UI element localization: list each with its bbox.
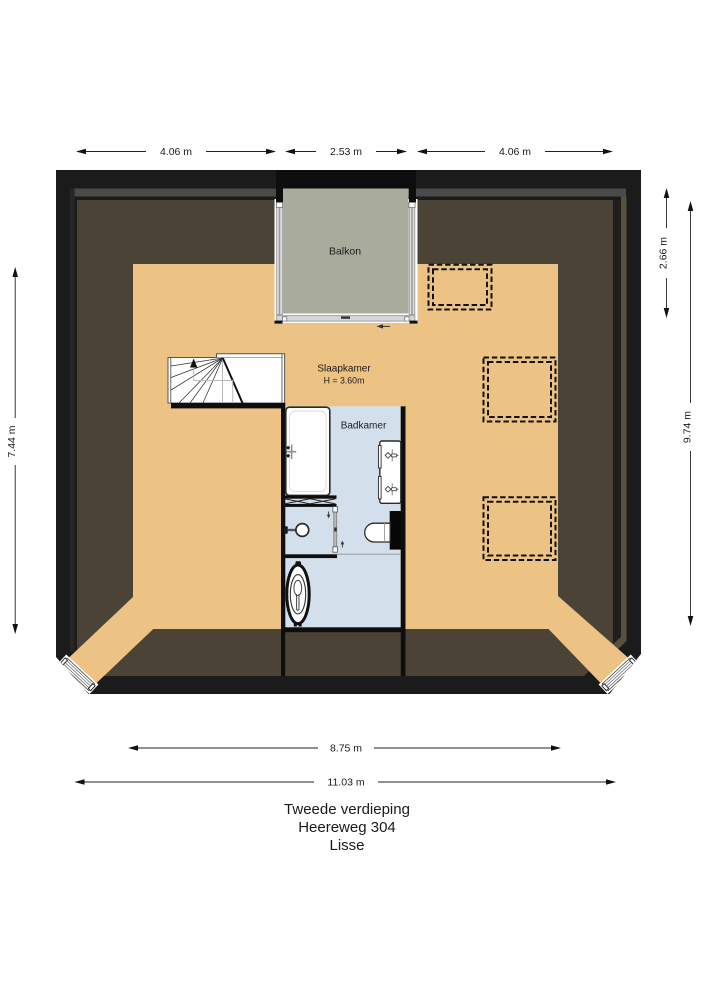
svg-text:7.44 m: 7.44 m (6, 425, 18, 457)
svg-text:Balkon: Balkon (329, 246, 361, 258)
svg-text:9.74 m: 9.74 m (682, 411, 694, 443)
svg-text:4.06 m: 4.06 m (160, 146, 192, 158)
svg-text:4.06 m: 4.06 m (499, 146, 531, 158)
svg-text:Heereweg 304: Heereweg 304 (298, 819, 396, 836)
svg-text:Badkamer: Badkamer (341, 421, 387, 432)
svg-text:Tweede verdieping: Tweede verdieping (284, 801, 410, 818)
svg-text:11.03 m: 11.03 m (327, 777, 364, 789)
svg-text:2.53 m: 2.53 m (330, 146, 362, 158)
svg-text:Lisse: Lisse (329, 837, 364, 854)
svg-text:Slaapkamer: Slaapkamer (317, 364, 371, 375)
svg-text:H = 3.60m: H = 3.60m (324, 375, 365, 385)
svg-text:2.66 m: 2.66 m (658, 237, 670, 269)
svg-text:8.75 m: 8.75 m (330, 743, 362, 755)
